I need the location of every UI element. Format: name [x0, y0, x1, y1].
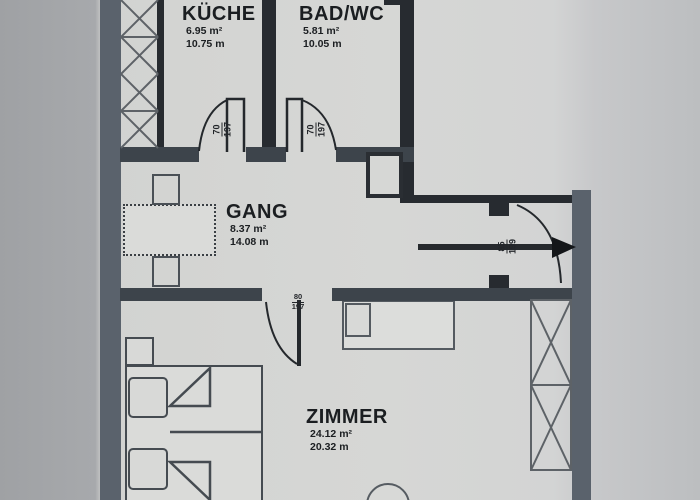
room-area: 8.37 m²: [230, 223, 288, 236]
room-label-bad-wc: BAD/WC 5.81 m² 10.05 m: [299, 3, 384, 51]
wall-outer-right: [572, 190, 591, 500]
door-size-label-entry: 85 199: [497, 229, 518, 265]
chair: [152, 256, 180, 287]
room-area: 6.95 m²: [186, 25, 256, 38]
wall-entry-stub: [489, 203, 509, 216]
door-size-label-bad: 70 197: [306, 112, 327, 148]
pillow: [128, 377, 168, 418]
wall-vestibule-top: [414, 195, 572, 203]
nightstand: [125, 337, 154, 366]
room-perimeter: 10.75 m: [186, 38, 256, 51]
room-label-gang: GANG 8.37 m² 14.08 m: [226, 201, 288, 249]
shaft-hatch-right: [531, 300, 571, 470]
round-table: [366, 483, 410, 500]
shaft-niche: [366, 152, 403, 198]
wall-gang-bottom-left: [120, 288, 262, 301]
room-area: 24.12 m²: [310, 428, 388, 441]
wall-kueche-bottom: [120, 147, 199, 162]
room-name: BAD/WC: [299, 3, 384, 25]
room-name: GANG: [226, 201, 288, 223]
floorplan-photo: KÜCHE 6.95 m² 10.75 m BAD/WC 5.81 m² 10.…: [0, 0, 700, 500]
door-size-label-kueche: 70 197: [212, 112, 233, 148]
room-name: ZIMMER: [306, 406, 388, 428]
room-area: 5.81 m²: [303, 25, 384, 38]
wall-entry-stub: [489, 275, 509, 288]
wall-stub: [384, 0, 400, 5]
dining-table: [123, 204, 216, 256]
wall-kueche-left: [157, 0, 164, 148]
wall-kueche-bad: [262, 0, 276, 148]
room-perimeter: 20.32 m: [310, 441, 388, 454]
room-label-kueche: KÜCHE 6.95 m² 10.75 m: [182, 3, 256, 51]
room-name: KÜCHE: [182, 3, 256, 25]
wall-outer-left: [100, 0, 121, 500]
chair: [152, 174, 180, 205]
pillow: [128, 448, 168, 490]
desk-chair: [345, 303, 371, 337]
room-perimeter: 14.08 m: [230, 236, 288, 249]
door-size-label-zimmer: 80 197: [281, 293, 315, 311]
room-perimeter: 10.05 m: [303, 38, 384, 51]
wall-gang-bottom-right: [332, 288, 572, 301]
room-label-zimmer: ZIMMER 24.12 m² 20.32 m: [306, 406, 388, 454]
shaft-hatch-left: [121, 0, 158, 148]
wall-pier: [246, 147, 286, 162]
